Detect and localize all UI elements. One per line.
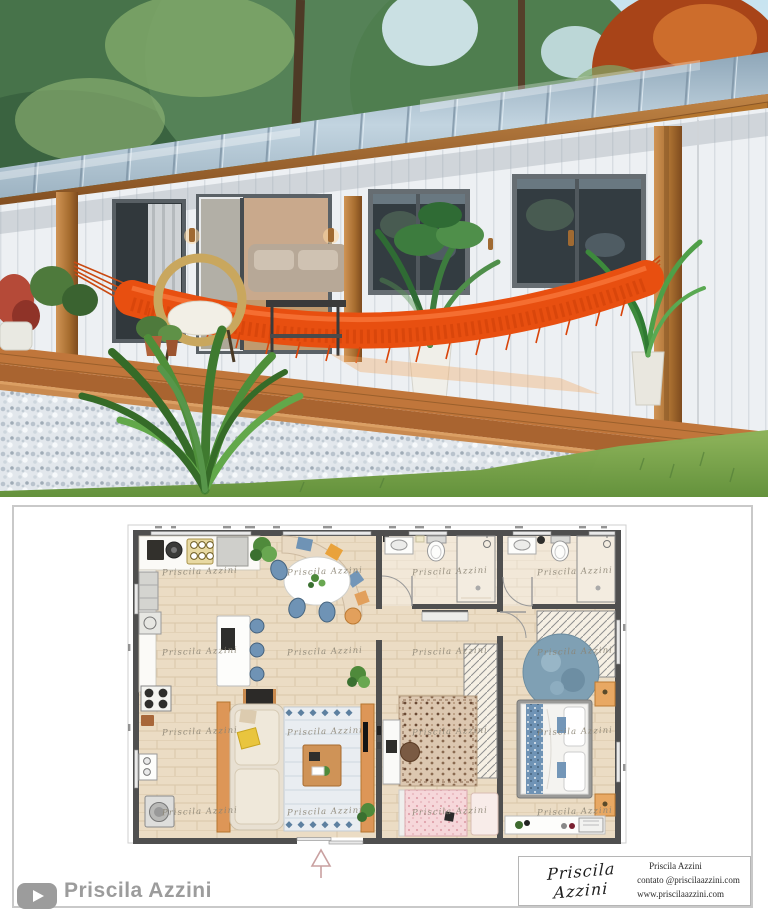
channel-name: Priscila Azzini: [64, 879, 212, 903]
coffee-table: [303, 745, 341, 786]
contact-name: Priscila Azzini: [637, 860, 744, 874]
desk-chair: [401, 743, 420, 762]
sliding-door-plan: [297, 838, 363, 845]
contact-info: Priscila Azzini contato @priscilaazzini.…: [637, 860, 744, 902]
house-design-pin: Priscila Azzini Priscila Azzini Priscila…: [0, 0, 768, 922]
house-photo-illustration: [0, 0, 768, 497]
play-icon: [33, 890, 44, 902]
pantry: [139, 572, 158, 610]
accent-pillow: [557, 762, 566, 778]
tv: [363, 722, 368, 752]
laptop: [386, 740, 397, 753]
bed-runner: [526, 704, 543, 794]
small-appliance: [147, 540, 164, 560]
contact-card: Priscila Azzini Priscila Azzini contato …: [518, 856, 751, 906]
oven: [139, 612, 161, 634]
cutting-board: [141, 715, 154, 726]
bar-stool: [250, 667, 264, 681]
youtube-play-button[interactable]: [17, 883, 57, 909]
media-unit: [246, 689, 273, 704]
bar-stool: [250, 643, 264, 657]
entrance-arrow-icon: [312, 850, 330, 878]
contact-website: www.priscilaazzini.com: [637, 888, 744, 902]
hall-shelf: [422, 612, 468, 621]
wall-corner: [697, 120, 699, 432]
round-rug: [523, 634, 599, 710]
cooktop: [141, 686, 171, 711]
pillow: [239, 709, 257, 724]
pillow: [564, 752, 585, 791]
bar-stool: [250, 619, 264, 633]
designer-signature: Priscila Azzini: [525, 857, 637, 905]
house-photo: [0, 0, 768, 497]
fridge: [217, 537, 248, 566]
hallway: [422, 610, 468, 621]
dining-chair: [319, 602, 335, 622]
bench-end: [345, 608, 361, 624]
ornate-rug: [399, 696, 477, 786]
contact-email: contato @priscilaazzini.com: [637, 874, 744, 888]
floor-plan: Priscila Azzini Priscila Azzini Priscila…: [127, 524, 631, 884]
